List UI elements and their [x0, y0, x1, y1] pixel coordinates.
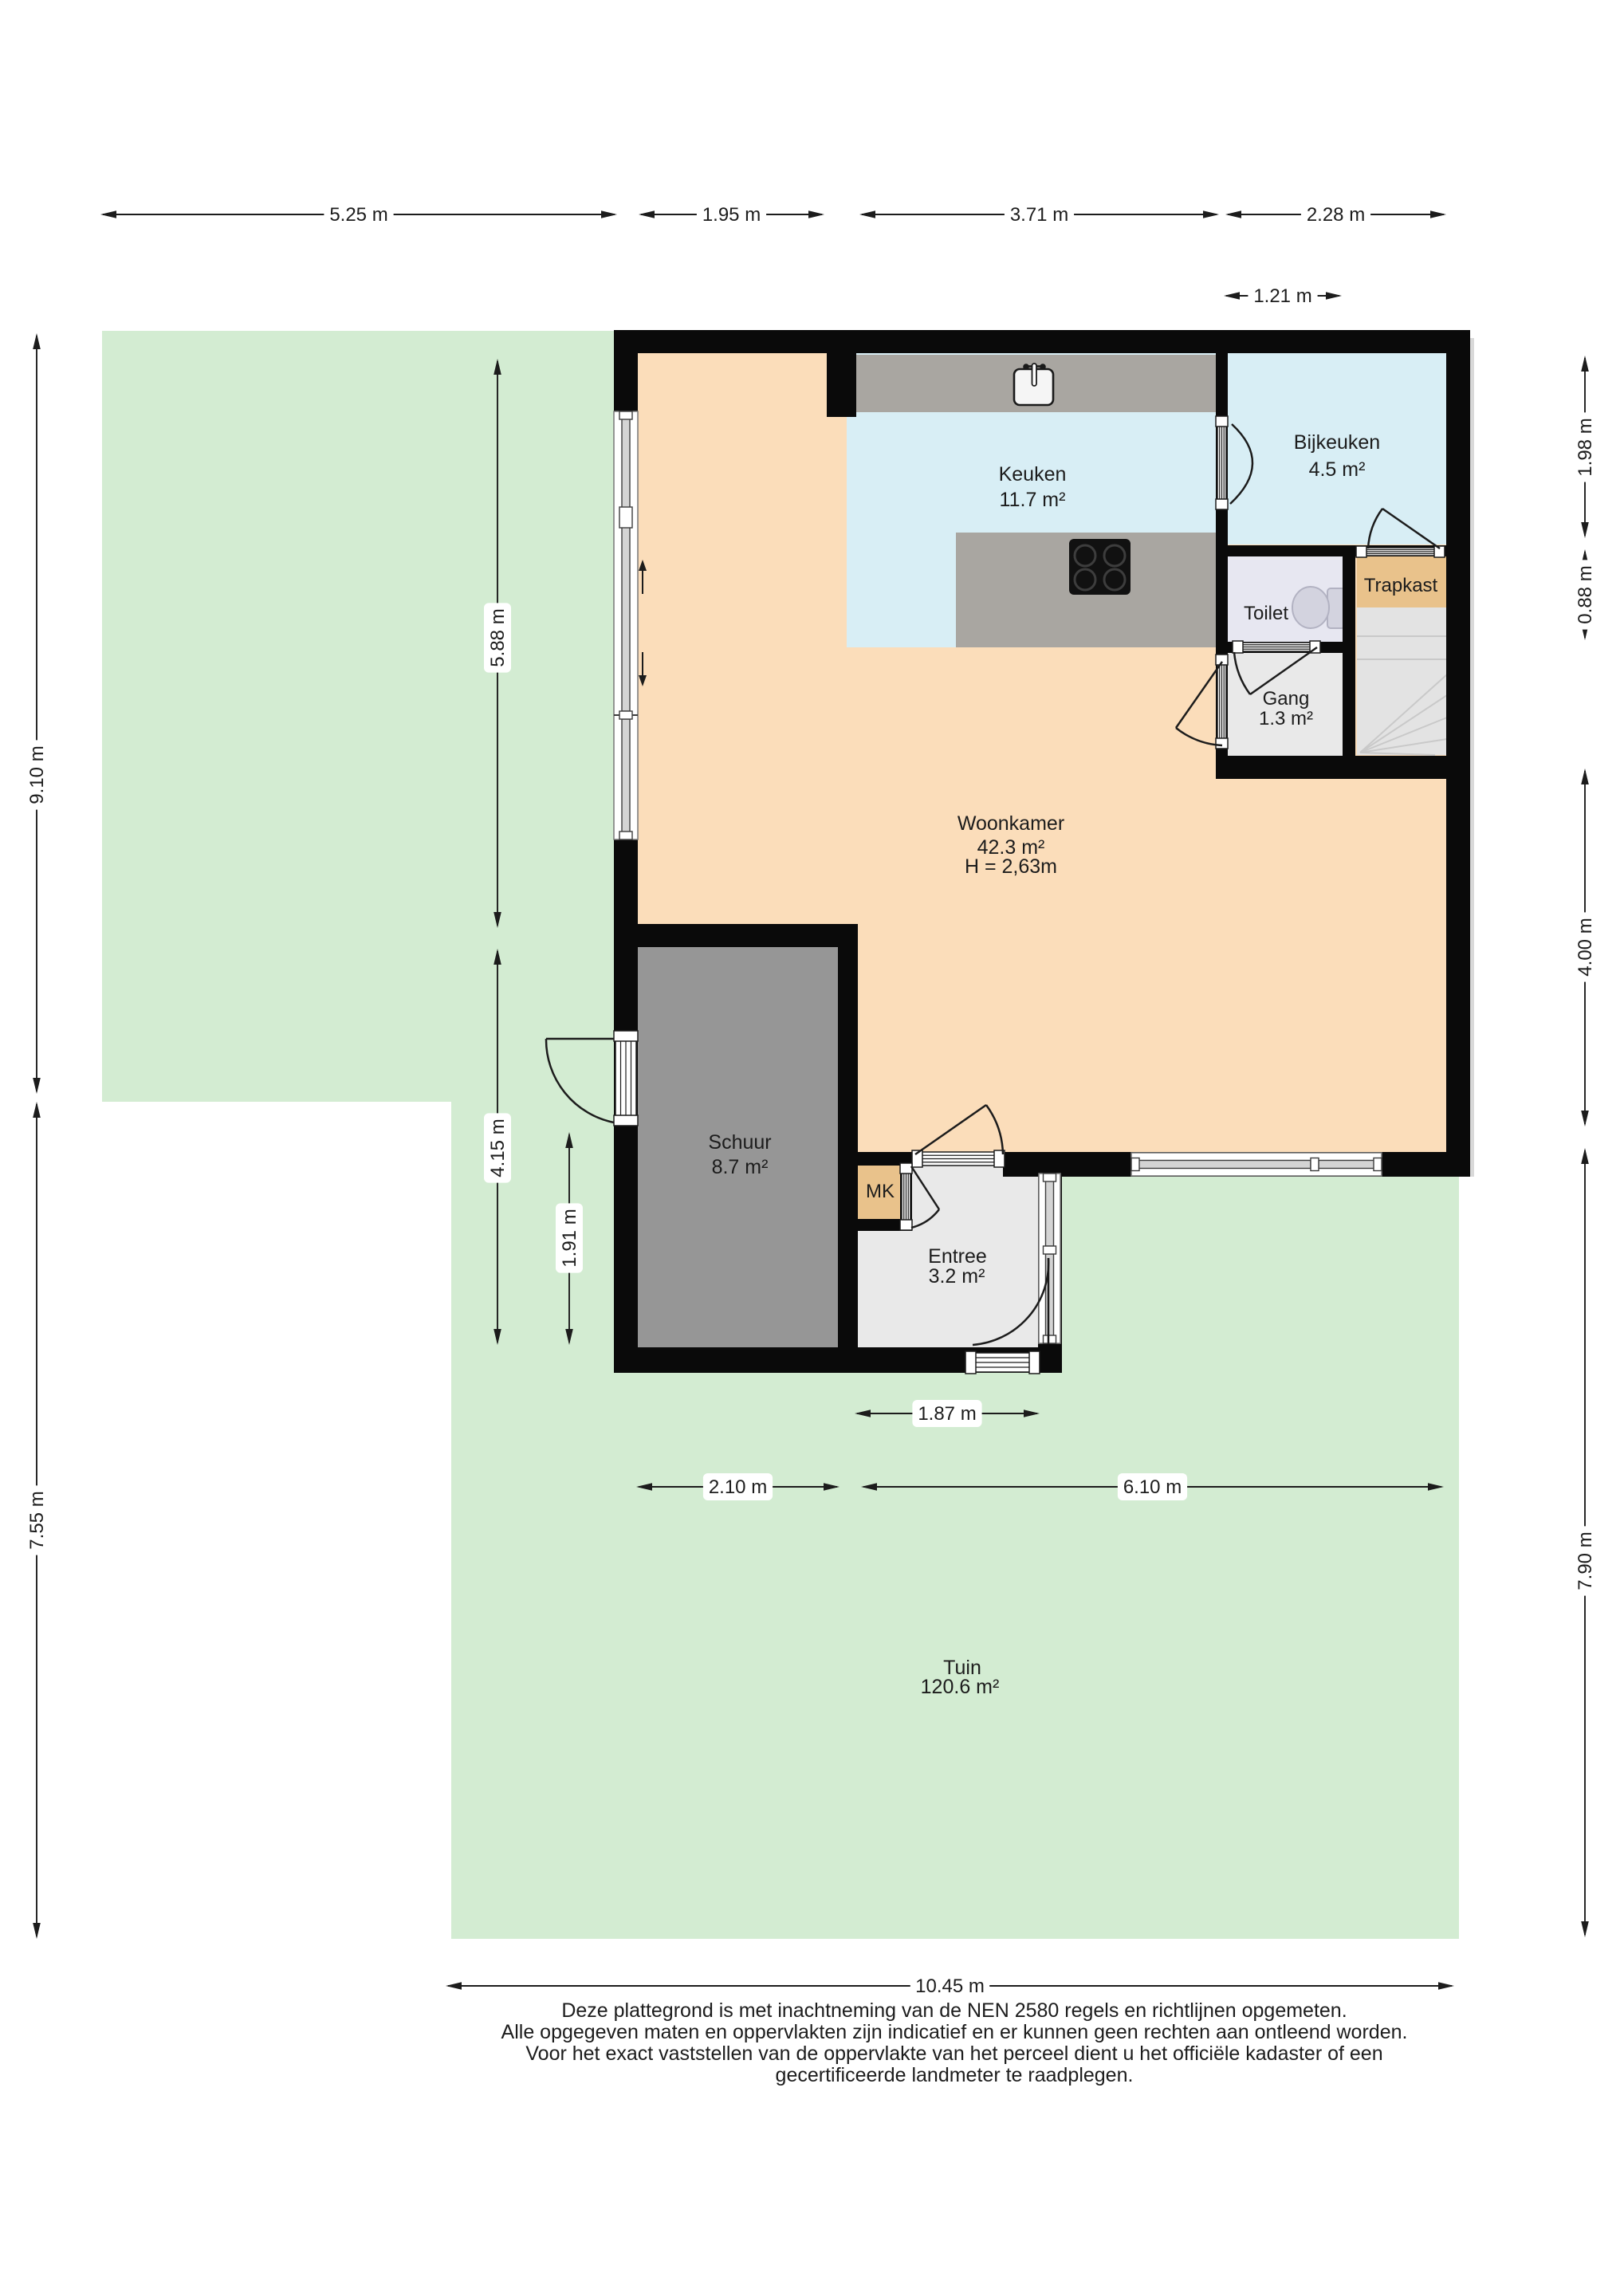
- svg-text:Trapkast: Trapkast: [1364, 575, 1438, 596]
- svg-text:11.7 m²: 11.7 m²: [1000, 489, 1066, 511]
- svg-text:1.87 m: 1.87 m: [918, 1403, 976, 1425]
- svg-text:Bijkeuken: Bijkeuken: [1294, 431, 1380, 454]
- svg-text:Toilet: Toilet: [1244, 603, 1288, 624]
- svg-text:Woonkamer: Woonkamer: [957, 812, 1064, 835]
- svg-text:Deze plattegrond is met inacht: Deze plattegrond is met inachtneming van…: [561, 1999, 1347, 2022]
- svg-text:6.10 m: 6.10 m: [1123, 1476, 1182, 1498]
- svg-text:9.10 m: 9.10 m: [26, 745, 48, 804]
- svg-text:1.95 m: 1.95 m: [702, 204, 761, 226]
- svg-text:7.90 m: 7.90 m: [1575, 1531, 1596, 1590]
- svg-text:1.21 m: 1.21 m: [1253, 285, 1311, 307]
- svg-text:5.25 m: 5.25 m: [329, 204, 387, 226]
- svg-text:Keuken: Keuken: [999, 463, 1067, 486]
- svg-text:3.71 m: 3.71 m: [1010, 204, 1068, 226]
- svg-text:1.98 m: 1.98 m: [1575, 418, 1596, 476]
- svg-text:Alle opgegeven maten en opperv: Alle opgegeven maten en oppervlakten zij…: [501, 2021, 1408, 2043]
- svg-text:2.28 m: 2.28 m: [1307, 204, 1365, 226]
- svg-text:0.88 m: 0.88 m: [1575, 565, 1596, 623]
- svg-text:1.91 m: 1.91 m: [559, 1209, 580, 1267]
- svg-text:4.5 m²: 4.5 m²: [1309, 458, 1366, 481]
- svg-text:4.00 m: 4.00 m: [1575, 918, 1596, 976]
- svg-text:5.88 m: 5.88 m: [487, 608, 509, 666]
- svg-text:2.10 m: 2.10 m: [709, 1476, 767, 1498]
- svg-text:10.45 m: 10.45 m: [915, 1976, 985, 1997]
- svg-text:MK: MK: [866, 1181, 895, 1202]
- svg-text:Gang: Gang: [1263, 688, 1310, 710]
- svg-text:H = 2,63m: H = 2,63m: [965, 855, 1057, 878]
- svg-text:3.2 m²: 3.2 m²: [929, 1265, 985, 1288]
- svg-text:Entree: Entree: [928, 1245, 987, 1268]
- svg-text:120.6 m²: 120.6 m²: [921, 1676, 1000, 1698]
- svg-text:4.15 m: 4.15 m: [487, 1119, 509, 1177]
- svg-text:7.55 m: 7.55 m: [26, 1491, 48, 1549]
- svg-text:8.7 m²: 8.7 m²: [712, 1156, 769, 1178]
- svg-text:1.3 m²: 1.3 m²: [1259, 708, 1313, 729]
- svg-text:Schuur: Schuur: [708, 1131, 771, 1154]
- svg-text:gecertificeerde landmeter te r: gecertificeerde landmeter te raadplegen.: [776, 2064, 1134, 2086]
- svg-text:Voor het exact vaststellen van: Voor het exact vaststellen van de opperv…: [525, 2042, 1382, 2065]
